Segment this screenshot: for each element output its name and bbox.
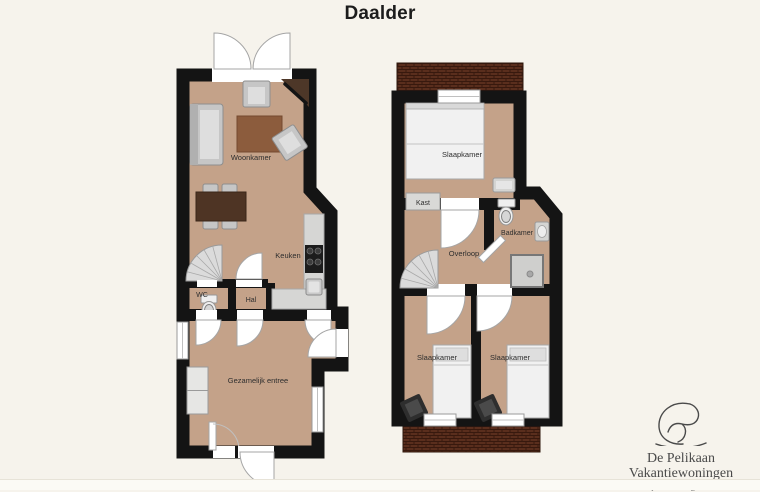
room-label-badkamer: Badkamer xyxy=(501,230,534,237)
entree-door-opening-3 xyxy=(307,310,331,320)
room-label-hal: Hal xyxy=(246,297,257,304)
logo-pelican-icon xyxy=(606,398,756,446)
roof-brick-bottom xyxy=(403,424,540,452)
bottom-strip xyxy=(0,479,760,490)
washbasin-icon xyxy=(535,222,549,241)
side-table-icon xyxy=(493,178,515,192)
room-label-wc: WC xyxy=(196,292,208,299)
french-door-opening xyxy=(212,68,292,82)
french-door-right-leaf-icon xyxy=(253,33,290,69)
room-label-kast: Kast xyxy=(416,200,430,207)
pelikaan-logo: De Pelikaan Vakantiewoningen Comfortabel… xyxy=(606,398,756,492)
room-label-slaapkamer-left: Slaapkamer xyxy=(417,353,458,362)
room-label-entree: Gezamelijk entree xyxy=(228,376,288,385)
window-left-icon xyxy=(177,322,188,359)
window-bottom-right-icon xyxy=(492,414,524,426)
sofa-icon xyxy=(190,104,223,165)
armchair-icon xyxy=(243,81,270,107)
stove-icon xyxy=(305,245,323,273)
room-label-woonkamer: Woonkamer xyxy=(231,153,272,162)
wall-badkamer-left xyxy=(484,198,494,250)
room-label-slaapkamer-right: Slaapkamer xyxy=(490,353,531,362)
room-label-keuken: Keuken xyxy=(275,251,300,260)
logo-line1: De Pelikaan xyxy=(606,451,756,466)
bedroom-right-door-opening xyxy=(477,284,512,296)
wc-door-opening xyxy=(197,280,217,287)
bedroom-top-door-opening xyxy=(441,198,479,210)
entree-door-opening-1 xyxy=(196,310,217,320)
entree-side-door-opening xyxy=(336,329,348,357)
double-bed-icon xyxy=(406,103,484,179)
window-top-icon xyxy=(438,90,480,103)
window-right-icon xyxy=(312,387,323,432)
room-label-overloop: Overloop xyxy=(449,249,479,258)
room-label-slaapkamer-main: Slaapkamer xyxy=(442,150,483,159)
cabinet-icon xyxy=(187,367,208,414)
french-door-left-leaf-icon xyxy=(214,33,251,69)
sink-icon xyxy=(306,279,322,295)
closet-door-leaf-icon xyxy=(209,422,216,450)
rug-icon xyxy=(237,116,282,152)
upper-floor-plan: Slaapkamer Kast Overloop Badkamer Slaapk… xyxy=(397,63,556,452)
floorplan-page: Daalder xyxy=(0,0,760,490)
shower-icon xyxy=(511,255,543,287)
hal-door-opening xyxy=(236,280,262,287)
entree-door-opening-2 xyxy=(237,310,263,320)
ground-floor-plan: Woonkamer Keuken WC Hal Gezamelijk entre… xyxy=(177,33,348,486)
window-bottom-left-icon xyxy=(424,414,456,426)
